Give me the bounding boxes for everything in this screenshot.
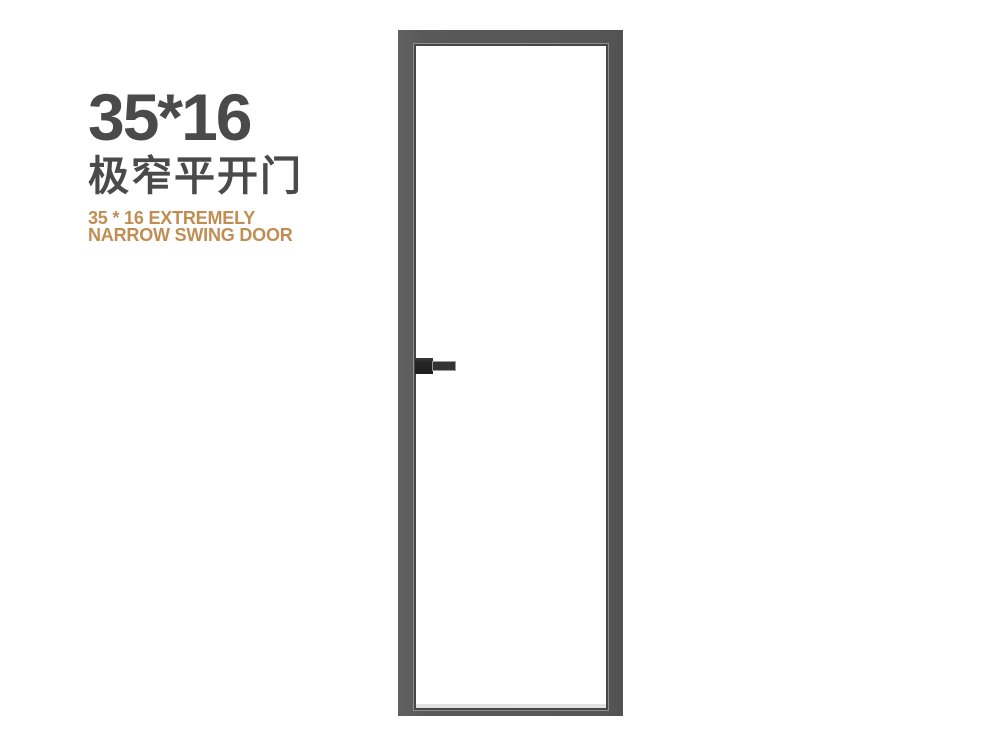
door-frame xyxy=(398,30,623,716)
door-handle xyxy=(415,358,455,374)
product-banner: 35*16 极窄平开门 35 * 16 EXTREMELY NARROW SWI… xyxy=(0,0,1000,750)
handle-lever xyxy=(433,362,455,370)
subtitle-en: 35 * 16 EXTREMELY NARROW SWING DOOR xyxy=(88,210,388,243)
product-name-zh: 极窄平开门 xyxy=(88,154,388,198)
headline-block: 35*16 极窄平开门 35 * 16 EXTREMELY NARROW SWI… xyxy=(88,84,388,243)
door-sill-shadow xyxy=(416,704,606,708)
handle-base xyxy=(415,358,433,374)
door-leaf xyxy=(416,46,606,708)
size-headline: 35*16 xyxy=(88,84,388,150)
subtitle-en-line2: NARROW SWING DOOR xyxy=(88,227,388,244)
